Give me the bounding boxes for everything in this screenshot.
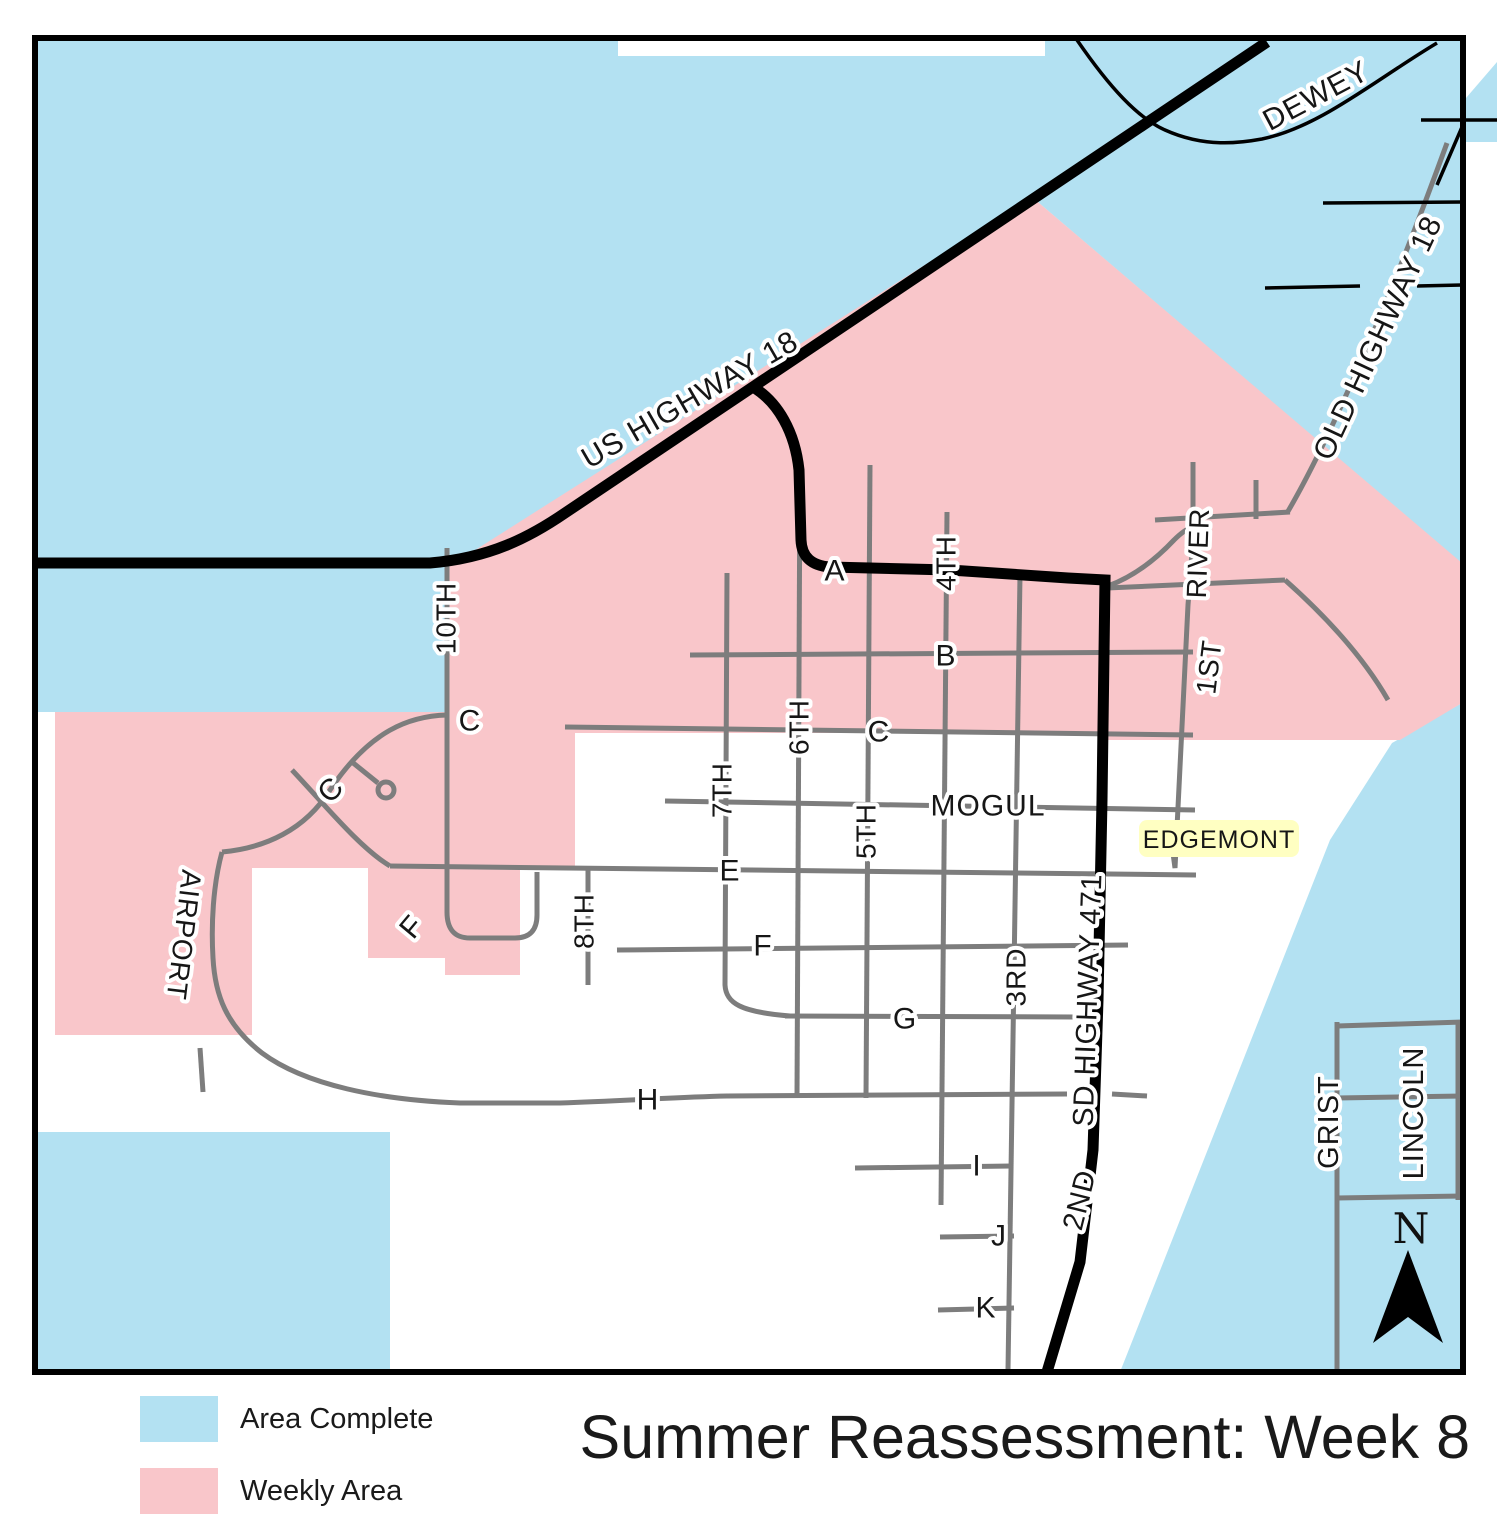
legend-item-area-complete: Area Complete [140,1396,433,1442]
road-g [785,1016,1075,1017]
assessment-map: US HIGHWAY 18 DEWEY OLD HIGHWAY 18 A 4TH… [0,0,1500,1500]
legend-item-weekly-area: Weekly Area [140,1468,433,1514]
label-sd-highway-471: SD HIGHWAY 471 [1068,873,1109,1128]
legend: Area Complete Weekly Area [140,1396,433,1540]
label-lincoln-street: LINCOLN [1398,1047,1430,1180]
label-10th-street: 10TH [431,582,462,654]
label-f-street: F [753,930,772,963]
label-7th-street: 7TH [707,762,738,818]
road-ne-tick3b [1417,285,1462,286]
label-i-street: I [972,1150,981,1183]
road-h-east-stub [1112,1094,1147,1096]
road-f [617,945,1128,950]
label-2nd-street: 2ND [1057,1167,1103,1234]
label-mogul-street: MOGUL [930,790,1045,823]
label-grist-street: GRIST [1313,1075,1345,1169]
road-airport-stub [200,1048,203,1092]
label-a-street: A [824,555,845,588]
label-e-street: E [719,855,740,888]
area-complete-southwest [35,1132,390,1372]
top-border-notch [618,41,1045,56]
label-river-street: RIVER [1181,507,1215,599]
label-6th-street: 6TH [784,699,815,755]
road-airport [212,852,1067,1103]
label-g-street: G [893,1003,917,1036]
label-k-street: K [975,1292,996,1325]
label-5th-street: 5TH [851,803,882,859]
road-i [855,1166,1012,1168]
label-h-street: H [637,1084,660,1117]
label-3rd-street: 3RD [1001,947,1032,1006]
label-j-street: J [991,1220,1007,1253]
area-complete-outside-corner [1466,62,1497,142]
area-fills [35,38,1497,1372]
north-label: N [1393,1204,1430,1253]
label-edgemont: EDGEMONT [1143,826,1295,854]
road-ne-tick2 [1323,202,1462,203]
area-complete-label: Area Complete [240,1403,433,1436]
road-6th [797,463,800,1096]
label-4th-street: 4TH [931,535,962,591]
page-title: Summer Reassessment: Week 8 [580,1402,1470,1472]
weekly-area-swatch [140,1468,218,1514]
weekly-area-label: Weekly Area [240,1475,402,1508]
road-grid-h3 [1337,1196,1463,1198]
label-b-street: B [935,640,956,673]
label-c-street: C [868,716,891,749]
label-8th-street: 8TH [569,893,600,949]
label-1st-street: 1ST [1190,638,1227,696]
road-ne-tick3a [1265,286,1360,288]
label-c-street-west: C [459,705,482,738]
weekly-area-west [55,712,445,1035]
area-complete-swatch [140,1396,218,1442]
map-page: US HIGHWAY 18 DEWEY OLD HIGHWAY 18 A 4TH… [0,0,1500,1500]
